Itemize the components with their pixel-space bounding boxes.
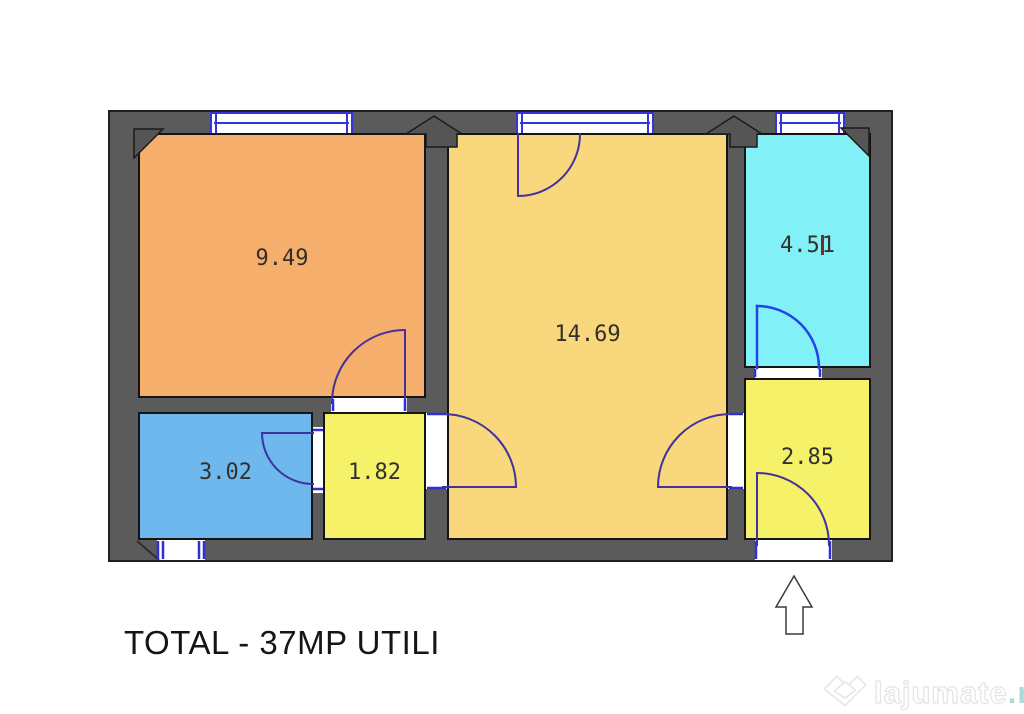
window-frame-line [779, 122, 841, 124]
window-icon-top-center [516, 112, 654, 133]
room-area-label-part: 1 [822, 233, 835, 258]
window-frame-line [520, 122, 650, 124]
room-area-label: 4.51 [744, 233, 871, 258]
total-area-label: TOTAL - 37MP UTILI [124, 624, 440, 662]
door-opening-entry-to-living [728, 413, 744, 489]
watermark: lajumate.ro [820, 668, 1024, 712]
window-frame-line [838, 114, 840, 133]
room-area-label: 1.82 [323, 460, 426, 485]
window-icon-bottom [157, 540, 205, 560]
watermark-tld: .ro [1008, 674, 1024, 712]
window-icon-top-right [775, 112, 845, 133]
floorplan-page: 9.49 14.69 4.51 3.02 1.82 2.85 TOTAL - 3… [0, 0, 1024, 714]
window-frame-line [647, 114, 649, 133]
window-frame-line [780, 114, 782, 133]
watermark-brand: lajumate [874, 674, 1008, 712]
room-area-label: 2.85 [744, 445, 871, 470]
room-area-label: 9.49 [138, 246, 426, 271]
window-icon-top-left [210, 112, 353, 133]
window-frame-line [214, 122, 349, 124]
door-opening-entry-to-topright [755, 368, 822, 378]
room-area-label-part: 4.5 [780, 233, 820, 258]
entrance-door-opening [755, 540, 832, 560]
window-frame-line [521, 114, 523, 133]
room-area-label: 14.69 [447, 322, 728, 347]
door-opening-hall-to-living [426, 413, 447, 489]
room-area-label: 3.02 [138, 460, 313, 485]
window-frame-line [346, 114, 348, 133]
lajumate-logo-icon [820, 670, 870, 712]
door-opening-bathroom [313, 427, 323, 493]
window-frame-line [215, 114, 217, 133]
entrance-arrow-icon [776, 576, 812, 634]
door-opening-bedroom [331, 398, 407, 412]
